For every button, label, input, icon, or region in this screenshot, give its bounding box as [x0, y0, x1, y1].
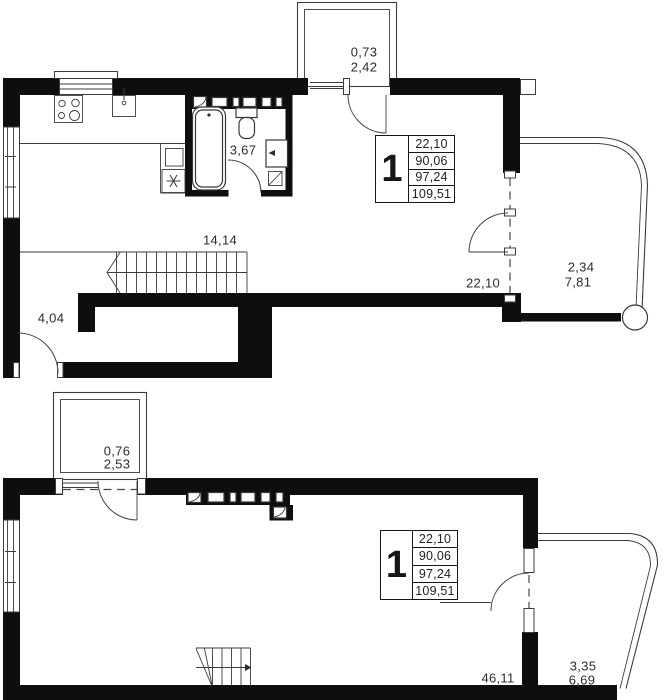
wall-notch: [521, 80, 536, 95]
area-label-upper-terrace: 7,81: [565, 275, 592, 290]
toilet-icon: [236, 108, 257, 118]
kitchen-window: [60, 79, 113, 95]
area-label-lower-living: 46,11: [481, 671, 514, 686]
entry-door-arc: [18, 333, 58, 373]
vent-shaft: [186, 490, 290, 505]
area-label-upper-balcony-coef: 0,73: [351, 45, 378, 60]
balcony-window: [310, 83, 348, 89]
dishwasher-icon: [166, 149, 184, 167]
lower-plan: [3, 393, 658, 700]
area-label-entry: 4,04: [38, 311, 65, 326]
area-label-upper-living: 22,10: [466, 276, 500, 291]
upper-top-balcony: [298, 3, 397, 87]
area-label-hall: 14,14: [203, 233, 237, 248]
sink-icon: [266, 140, 288, 167]
plan-drawing: [0, 0, 664, 700]
lower-doors: [98, 481, 529, 611]
left-window-lower: [4, 520, 20, 612]
balcony-door-arc: [98, 481, 137, 520]
info-row: 22,10: [413, 531, 457, 547]
floor-plan-canvas: 0,73 2,42 3,67 14,14 4,04 22,10 2,34 7,8…: [0, 0, 664, 700]
upper-walls: [3, 78, 536, 378]
lower-top-balcony: [54, 393, 147, 480]
info-row: 90,06: [409, 152, 454, 169]
area-label-upper-terrace-coef: 2,34: [568, 260, 595, 275]
info-row: 97,24: [413, 565, 457, 582]
bathroom-door-arc: [228, 160, 261, 193]
upper-stairs: [20, 252, 247, 294]
info-row: 97,24: [409, 169, 454, 186]
info-row: 90,06: [413, 547, 457, 564]
apartment-number: 1: [376, 136, 409, 202]
area-label-lower-balcony: 2,53: [104, 457, 131, 472]
info-row: 109,51: [409, 185, 454, 202]
apartment-info-box-lower: 1 22,10 90,06 97,24 109,51: [380, 530, 458, 600]
apartment-info-box-upper: 1 22,10 90,06 97,24 109,51: [375, 135, 455, 203]
apartment-areas: 22,10 90,06 97,24 109,51: [413, 531, 457, 599]
window-sill: [55, 72, 118, 79]
area-label-lower-terrace: 6,69: [569, 673, 596, 688]
area-label-upper-balcony: 2,42: [351, 60, 378, 75]
apartment-areas: 22,10 90,06 97,24 109,51: [409, 136, 454, 202]
upper-kitchen: [20, 88, 185, 193]
counter-line: [20, 144, 185, 194]
apartment-number: 1: [381, 531, 413, 599]
left-window-upper: [4, 127, 20, 218]
column-icon: [623, 305, 648, 330]
info-row: 109,51: [413, 582, 457, 599]
terrace-door-arc: [469, 213, 508, 252]
area-label-bathroom: 3,67: [230, 143, 257, 158]
lower-stairs: [196, 648, 252, 685]
lower-windows: [4, 483, 138, 612]
info-row: 22,10: [409, 136, 454, 152]
terrace-door-arc: [491, 573, 529, 611]
lower-walls: [3, 478, 617, 700]
area-label-lower-terrace-coef: 3,35: [570, 659, 597, 674]
upper-right-balcony: [510, 138, 648, 331]
balcony-bottom-wall: [518, 313, 621, 322]
balcony-window: [63, 483, 98, 488]
upper-plan: [3, 3, 648, 379]
balcony-door-arc: [348, 95, 386, 133]
